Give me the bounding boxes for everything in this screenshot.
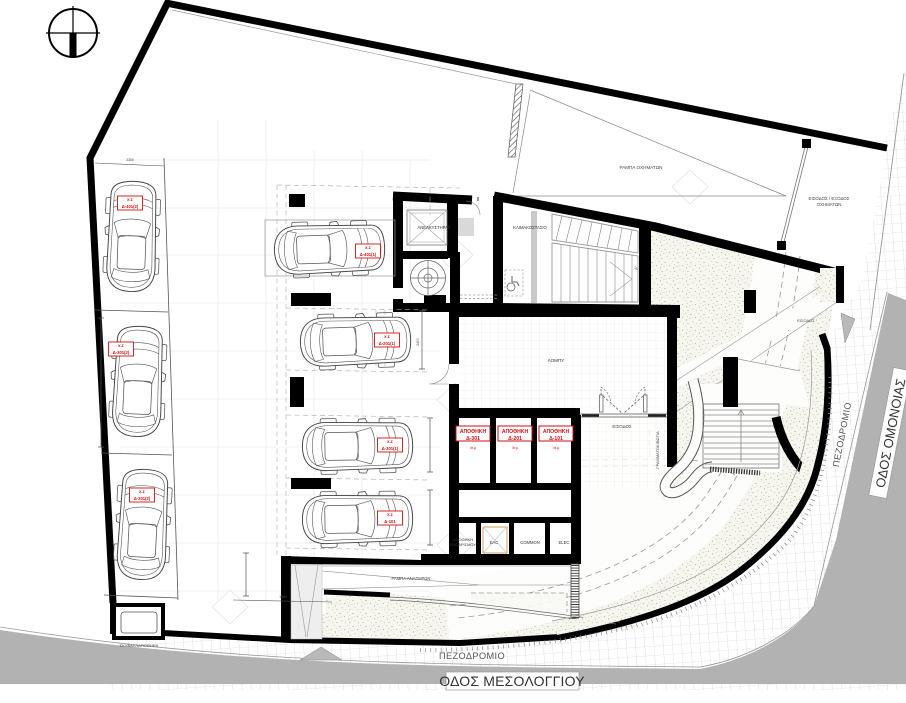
svg-text:Δ-401(1): Δ-401(1) [360,252,377,257]
svg-text:4τ.μ: 4τ.μ [470,446,477,450]
svg-text:Δ-101: Δ-101 [384,519,396,524]
svg-text:ΡΑΜΠΑ ΟΧΗΜΑΤΩΝ: ΡΑΜΠΑ ΟΧΗΜΑΤΩΝ [620,165,663,170]
svg-text:ΟΧΗΜΑΤΩΝ: ΟΧΗΜΑΤΩΝ [817,202,842,207]
svg-text:ΚΑΘΑΡΙΣΜΟΥ: ΚΑΘΑΡΙΣΜΟΥ [450,542,477,547]
svg-text:ΣΚΥΒΑΛΛΑΠΟΘΗΚΗ: ΣΚΥΒΑΛΛΑΠΟΘΗΚΗ [120,643,159,648]
svg-text:Δ-301: Δ-301 [466,436,480,442]
svg-text:Χ.Σ: Χ.Σ [127,197,134,202]
svg-text:Χ.Σ: Χ.Σ [387,512,394,517]
svg-text:ΑΠΟΘΗΚΗ: ΑΠΟΘΗΚΗ [502,429,529,435]
svg-text:ΑΝΕΛΚΥΣΤΗΡΑΣ: ΑΝΕΛΚΥΣΤΗΡΑΣ [417,225,450,230]
svg-text:Δ-301(1): Δ-301(1) [382,446,399,451]
svg-text:ΕΙΣΟΔΟΣ: ΕΙΣΟΔΟΣ [612,424,631,429]
svg-text:ΕΙΣΟΔΟΣ: ΕΙΣΟΔΟΣ [797,318,815,323]
svg-text:ΓΡΑΜΜΑΤΟΚΙΒΩΤΙΑ: ΓΡΑΜΜΑΤΟΚΙΒΩΤΙΑ [655,431,660,469]
svg-text:ELEC: ELEC [559,540,570,545]
svg-text:Δ-201(2): Δ-201(2) [134,496,151,501]
svg-text:2300: 2300 [126,158,134,162]
svg-text:Δ-201(1): Δ-201(1) [379,341,396,346]
svg-text:ΡΑΜΠΑ ΑΝΑΠΗΡΩΝ: ΡΑΜΠΑ ΑΝΑΠΗΡΩΝ [392,576,431,581]
svg-text:ΑΠΟΘΗΚΗ: ΑΠΟΘΗΚΗ [460,429,487,435]
svg-text:Χ.Σ: Χ.Σ [139,489,146,494]
svg-text:Δ-201: Δ-201 [508,436,522,442]
svg-text:4τ.μ: 4τ.μ [512,446,519,450]
svg-text:Δ-401(2): Δ-401(2) [122,204,139,209]
svg-text:2400: 2400 [416,338,420,346]
svg-text:Χ.Σ: Χ.Σ [384,334,391,339]
svg-text:Χ.Σ: Χ.Σ [387,439,394,444]
svg-text:Χ.Σ: Χ.Σ [118,343,125,348]
svg-text:EAC: EAC [490,540,499,545]
svg-text:ΚΛΙΜΑΚΟΣΤΑΣΙΟ: ΚΛΙΜΑΚΟΣΤΑΣΙΟ [513,225,547,230]
svg-text:4τ.μ: 4τ.μ [553,446,560,450]
svg-text:ΛΟΜΠΥ: ΛΟΜΠΥ [548,358,565,363]
svg-text:ΕΙΣΟΔΟΣ / ΕΞΟΔΟΣ: ΕΙΣΟΔΟΣ / ΕΞΟΔΟΣ [809,196,850,201]
svg-text:ΠΕΖΟΔΡΟΜΙΟ: ΠΕΖΟΔΡΟΜΙΟ [439,651,505,661]
svg-text:1884: 1884 [279,595,287,599]
svg-text:ΑΠΟΘΗΚΗ: ΑΠΟΘΗΚΗ [543,429,570,435]
svg-text:ΟΔΟΣ ΜΕΣΟΛΟΓΓΙΟΥ: ΟΔΟΣ ΜΕΣΟΛΟΓΓΙΟΥ [439,673,585,689]
svg-text:COMMON: COMMON [520,540,540,545]
svg-text:Δ-301(2): Δ-301(2) [113,350,130,355]
svg-text:Δ-101: Δ-101 [549,436,563,442]
svg-text:Χ.Σ: Χ.Σ [365,245,372,250]
